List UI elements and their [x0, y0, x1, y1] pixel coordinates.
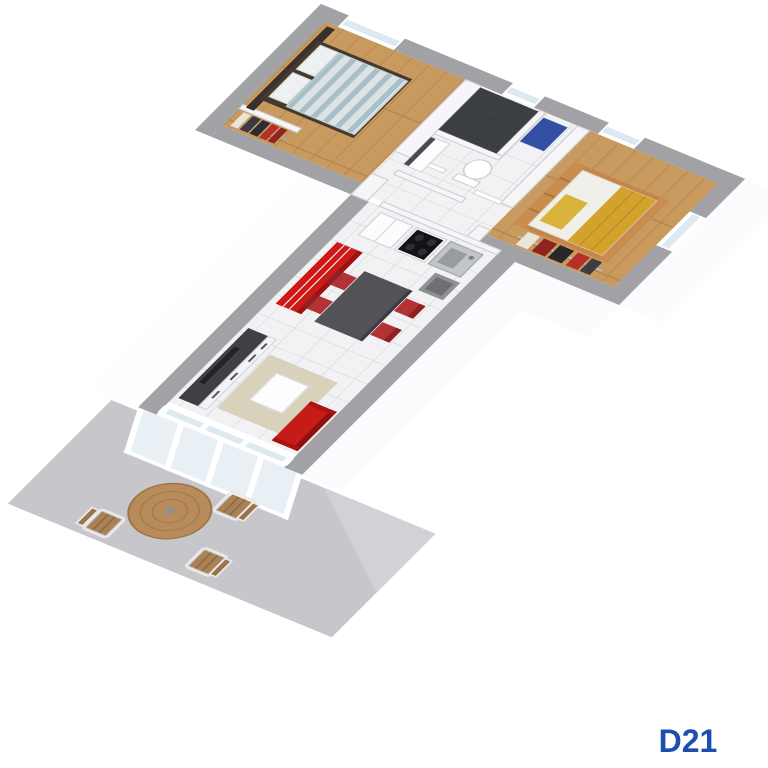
plan-label: D21	[659, 723, 718, 759]
floor-plan-svg: D21	[0, 0, 768, 768]
floor-plan-render: D21	[0, 0, 768, 768]
